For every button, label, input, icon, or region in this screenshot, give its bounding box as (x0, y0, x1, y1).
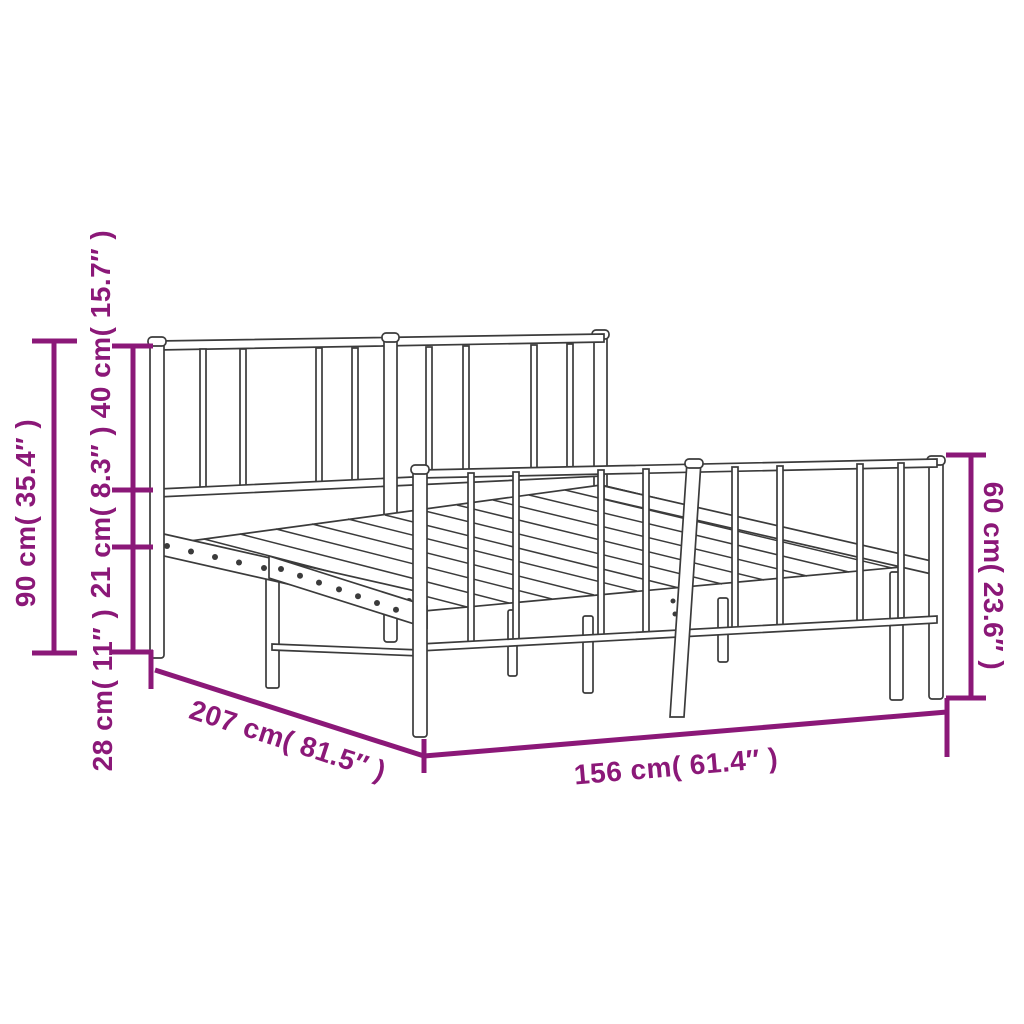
support-leg (266, 572, 279, 688)
support-leg (583, 616, 593, 693)
footboard-middle-post (670, 462, 701, 717)
headboard-near-post (150, 340, 164, 658)
slat-base (168, 485, 936, 611)
product-dimension-diagram: 90 cm( 35.4″ ) 40 cm( 15.7″ ) 21 cm( 8.3… (0, 0, 1024, 1024)
dim-label-overall-height: 90 cm( 35.4″ ) (10, 419, 41, 608)
dim-label-footboard-height: 60 cm( 23.6″ ) (978, 482, 1009, 671)
bed-frame-drawing: 90 cm( 35.4″ ) 40 cm( 15.7″ ) 21 cm( 8.3… (0, 0, 1024, 1024)
leg-stretcher (272, 644, 420, 656)
dim-label-frame-width: 156 cm( 61.4″ ) (573, 742, 779, 790)
dim-label-frame-length: 207 cm( 81.5″ ) (186, 694, 390, 787)
dim-label-rail-section: 21 cm( 8.3″ ) (85, 426, 116, 598)
dim-label-ground-clearance: 28 cm( 11″ ) (87, 609, 118, 772)
footboard-far-post (929, 459, 943, 699)
footboard-near-post (413, 468, 427, 737)
dim-label-headboard-top-section: 40 cm( 15.7″ ) (85, 230, 116, 419)
dimension-line-sections (112, 346, 153, 652)
